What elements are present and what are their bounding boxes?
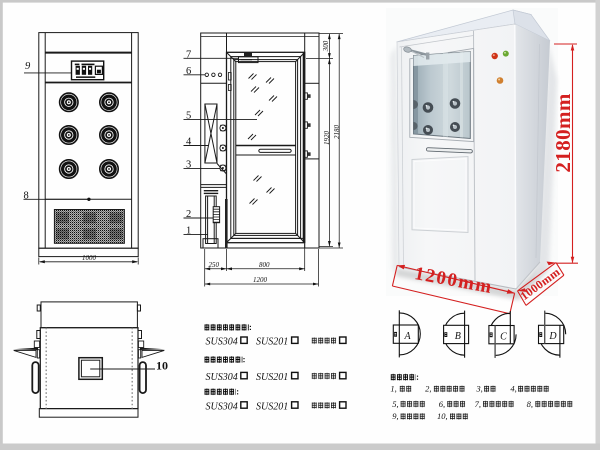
svg-text:8: 8 (24, 191, 29, 202)
svg-text:5: 5 (186, 111, 191, 122)
svg-text:C: C (500, 331, 507, 342)
svg-text:6: 6 (186, 66, 191, 77)
svg-text:1920: 1920 (323, 131, 331, 146)
svg-text:2: 2 (186, 209, 191, 220)
svg-text:250: 250 (209, 261, 220, 269)
svg-text:7: 7 (186, 49, 191, 60)
svg-text:A: A (403, 331, 411, 342)
svg-text:5,: 5, (392, 399, 398, 409)
svg-text:2180mm: 2180mm (551, 93, 575, 172)
svg-text:800: 800 (259, 261, 270, 269)
svg-text:B: B (455, 331, 461, 342)
svg-text:9,: 9, (392, 411, 398, 421)
svg-text:4,: 4, (510, 384, 516, 394)
svg-text:10: 10 (156, 359, 168, 373)
svg-text:6,: 6, (439, 399, 445, 409)
svg-text:9: 9 (25, 61, 31, 72)
svg-text:1,: 1, (390, 384, 396, 394)
svg-text:2,: 2, (425, 384, 431, 394)
svg-text:10,: 10, (437, 411, 448, 421)
svg-text:300: 300 (322, 40, 330, 52)
svg-text:1000: 1000 (82, 254, 97, 262)
svg-text:7,: 7, (475, 399, 481, 409)
svg-text:SUS304: SUS304 (206, 401, 238, 412)
svg-text:SUS201: SUS201 (256, 337, 288, 348)
svg-text:3: 3 (186, 160, 191, 171)
svg-text:8,: 8, (527, 399, 533, 409)
svg-text:SUS304: SUS304 (206, 337, 238, 348)
svg-text:1200: 1200 (253, 276, 268, 284)
svg-text:SUS304: SUS304 (206, 372, 238, 383)
svg-text:4: 4 (186, 137, 192, 148)
svg-text:2180: 2180 (333, 125, 341, 140)
svg-text:SUS201: SUS201 (256, 372, 288, 383)
svg-text:3,: 3, (475, 384, 482, 394)
svg-text:1: 1 (186, 225, 191, 236)
svg-text:D: D (548, 331, 557, 342)
svg-text:SUS201: SUS201 (256, 401, 288, 412)
